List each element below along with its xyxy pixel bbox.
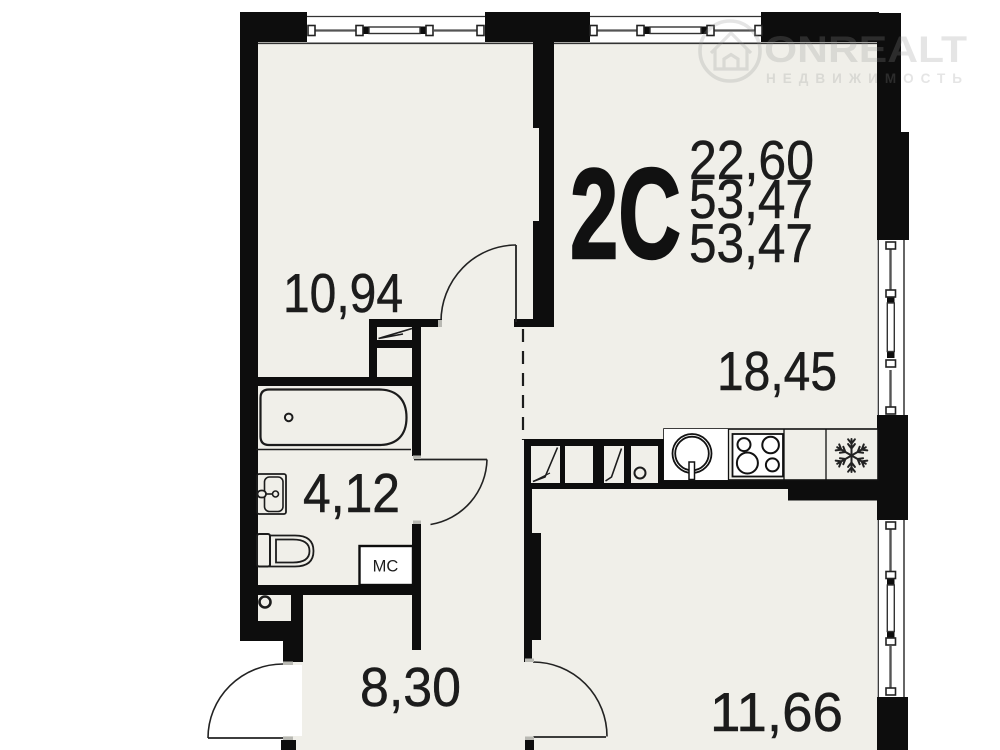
svg-text:ONREALT: ONREALT: [764, 29, 967, 70]
svg-text:4,12: 4,12: [303, 462, 400, 524]
svg-text:8,30: 8,30: [360, 656, 461, 718]
svg-text:18,45: 18,45: [717, 340, 837, 402]
svg-text:2С: 2С: [570, 143, 681, 286]
svg-text:53,47: 53,47: [689, 212, 813, 274]
svg-text:МС: МС: [373, 558, 399, 576]
svg-text:10,94: 10,94: [283, 262, 403, 324]
svg-text:11,66: 11,66: [710, 681, 843, 743]
